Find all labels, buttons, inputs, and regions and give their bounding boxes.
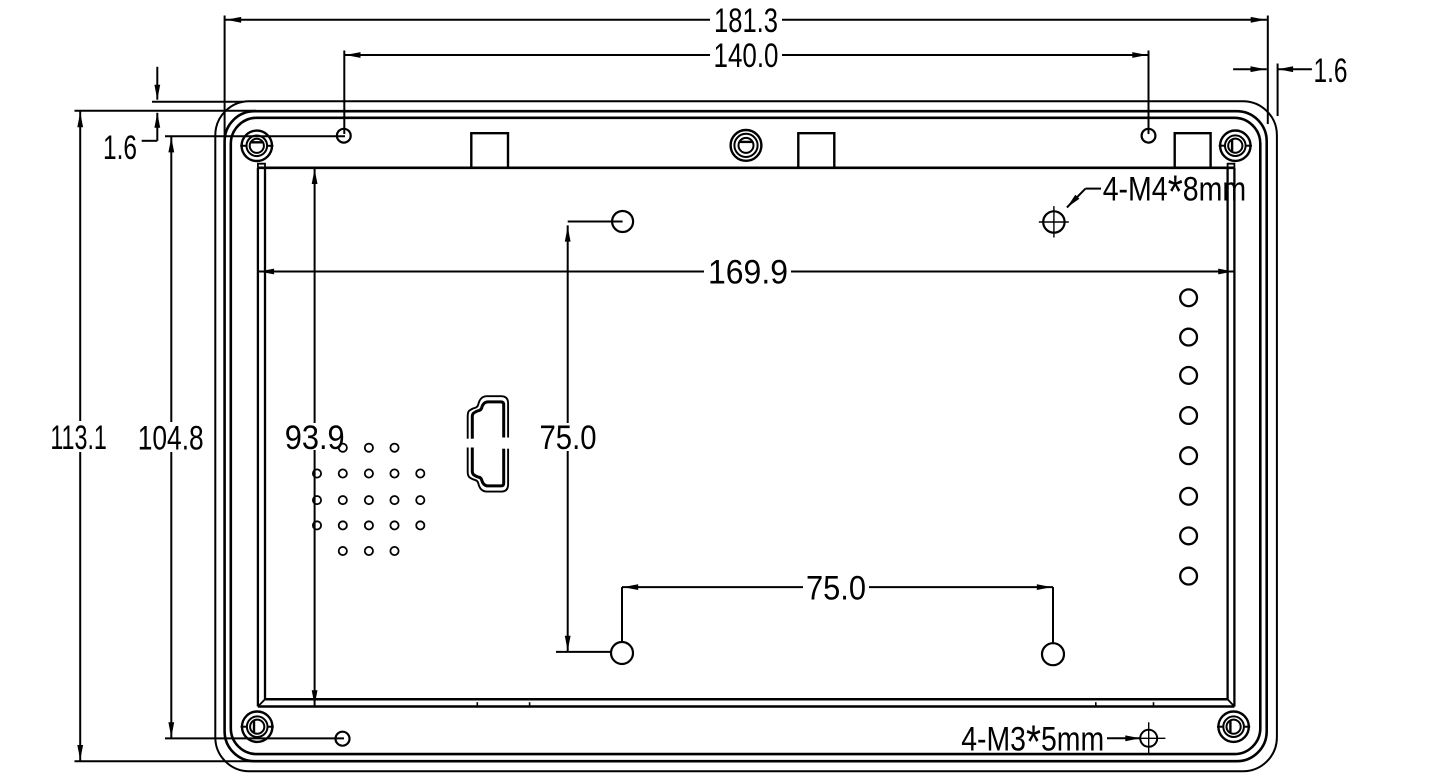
svg-text:1.6: 1.6 [1314, 52, 1348, 90]
svg-text:75.0: 75.0 [540, 419, 597, 457]
svg-text:1.6: 1.6 [103, 129, 137, 167]
svg-text:75.0: 75.0 [806, 570, 866, 608]
svg-text:181.3: 181.3 [714, 2, 778, 40]
svg-text:169.9: 169.9 [708, 254, 788, 292]
svg-text:140.0: 140.0 [714, 37, 779, 75]
svg-text:104.8: 104.8 [138, 419, 204, 457]
svg-text:113.1: 113.1 [50, 419, 107, 457]
svg-text:93.9: 93.9 [285, 419, 345, 457]
